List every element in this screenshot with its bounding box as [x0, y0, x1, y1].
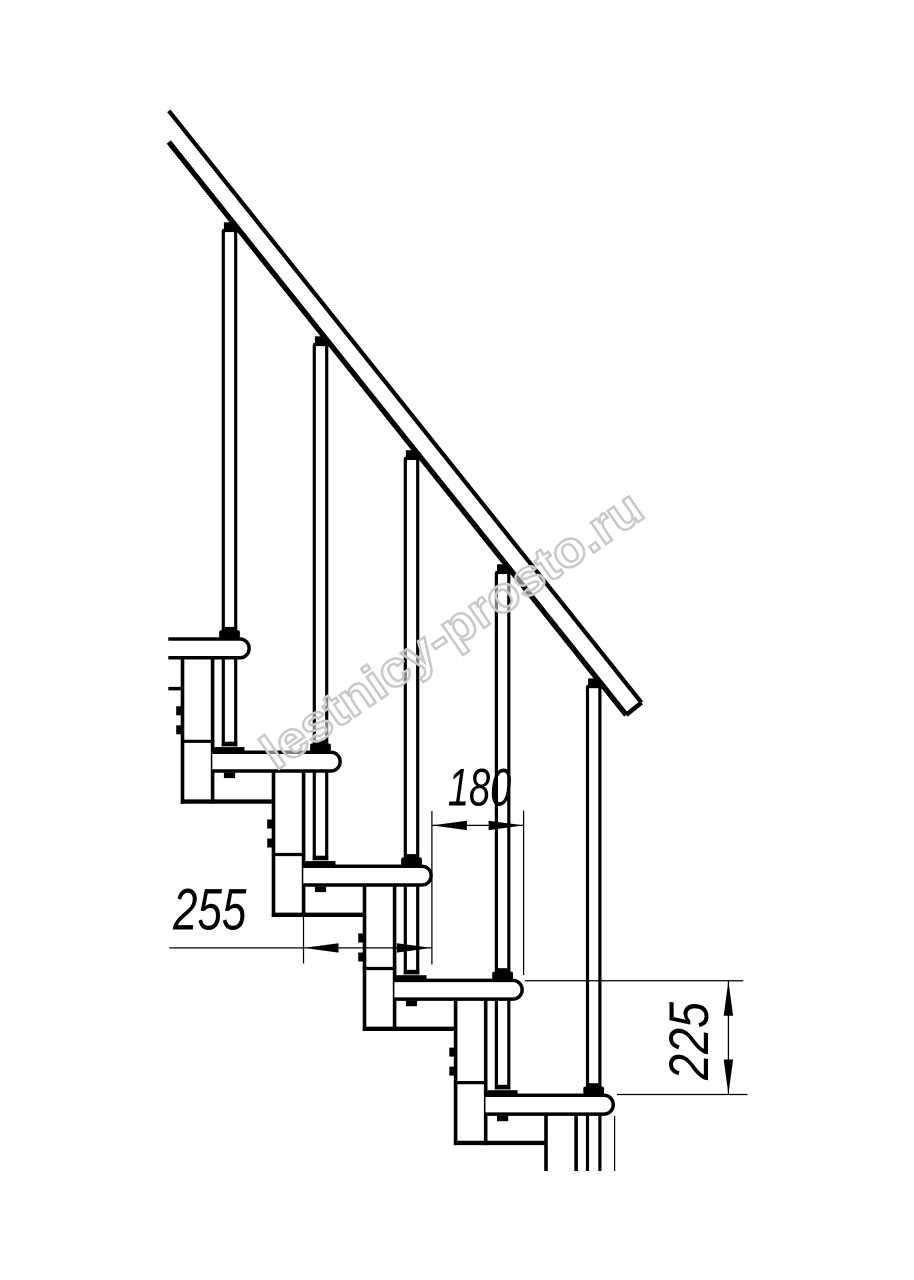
svg-text:180: 180 [448, 759, 512, 818]
svg-text:225: 225 [658, 1002, 720, 1081]
svg-text:255: 255 [172, 878, 247, 943]
